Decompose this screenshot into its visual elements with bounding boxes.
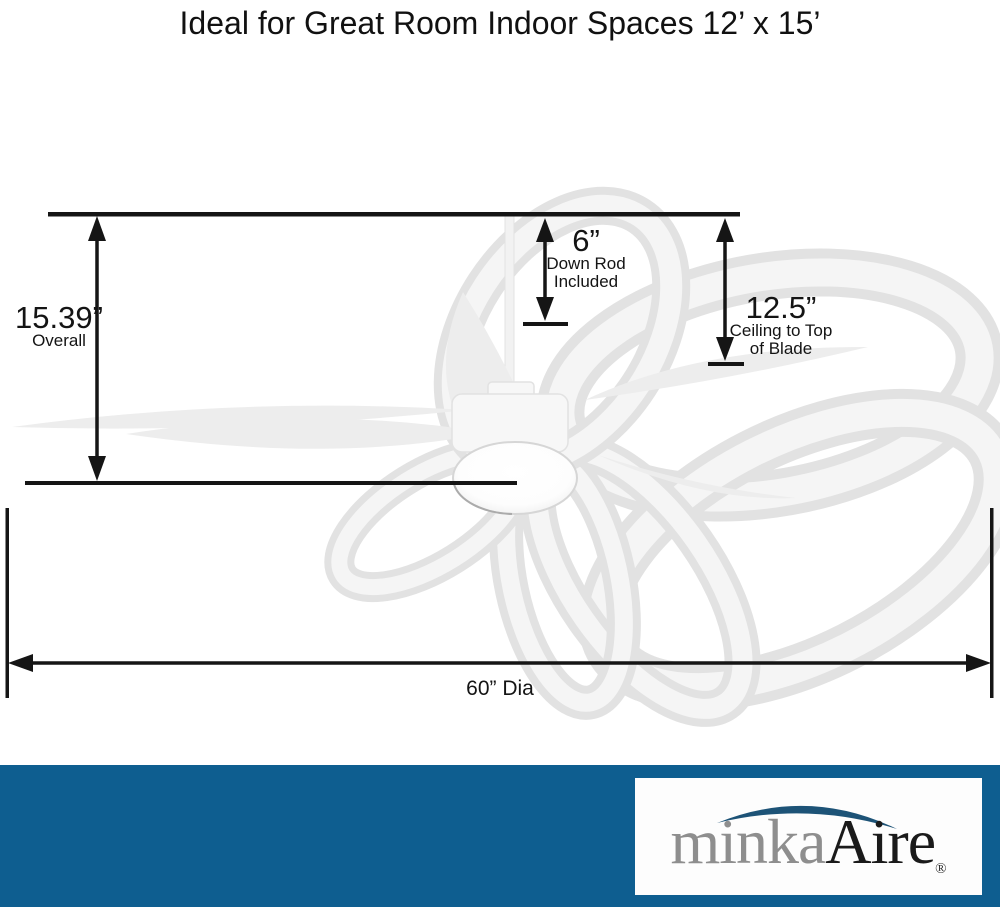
ceiling-to-blade-value: 12.5” xyxy=(706,293,856,322)
brand-logo: minkaAire® xyxy=(635,778,982,895)
ceiling-line xyxy=(48,212,740,217)
overall-height-dimension-label: 15.39” Overall xyxy=(0,303,118,350)
overall-height-value: 15.39” xyxy=(0,303,118,332)
downrod-dimension-label: 6” Down Rod Included xyxy=(512,226,660,291)
ceiling-to-blade-caption-line1: Ceiling to Top xyxy=(706,322,856,340)
brand-footer: minkaAire® xyxy=(0,765,1000,907)
brand-word-minka: minka xyxy=(670,806,825,877)
brand-wordmark: minkaAire® xyxy=(635,809,982,892)
downrod-caption-line2: Included xyxy=(512,273,660,291)
brand-word-aire: Aire xyxy=(825,806,935,877)
product-dimension-diagram: Ideal for Great Room Indoor Spaces 12’ x… xyxy=(0,0,1000,907)
ceiling-to-blade-caption-line2: of Blade xyxy=(706,340,856,358)
ceiling-to-blade-dimension-label: 12.5” Ceiling to Top of Blade xyxy=(706,293,856,358)
diameter-dimension-label: 60” Dia xyxy=(0,677,1000,701)
downrod-value: 6” xyxy=(512,226,660,255)
registered-trademark-symbol: ® xyxy=(935,836,946,902)
downrod-caption-line1: Down Rod xyxy=(512,255,660,273)
fan-light xyxy=(453,442,577,514)
